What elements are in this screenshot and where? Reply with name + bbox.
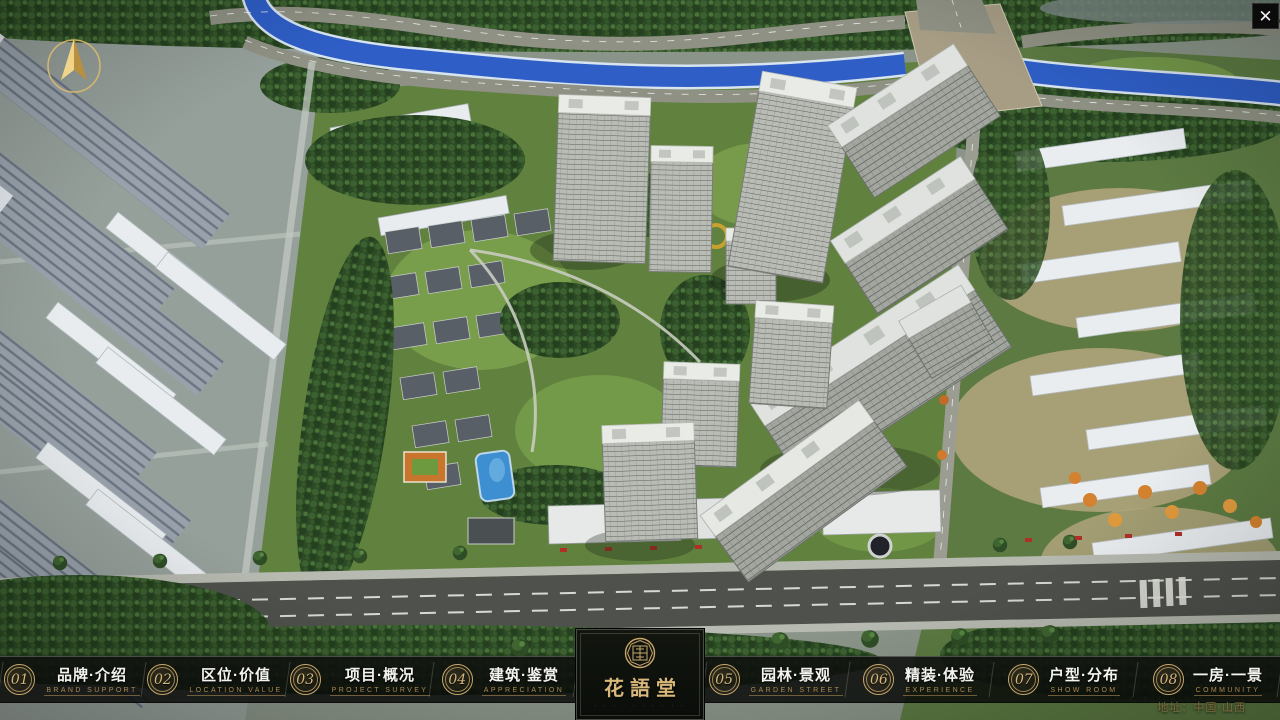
nav-number-badge: 06 <box>863 664 894 695</box>
nav-item-title: 一房·一景 <box>1193 664 1263 685</box>
nav-number-badge: 08 <box>1153 664 1184 695</box>
nav-item-title: 精装·体验 <box>905 664 975 685</box>
nav-number-badge: 05 <box>709 664 740 695</box>
nav-item-subtitle: APPRECIATION <box>482 687 566 696</box>
nav-item-subtitle: LOCATION VALUE <box>187 687 284 696</box>
nav-number-badge: 03 <box>290 664 321 695</box>
nav-item-architecture[interactable]: 04 建筑·鉴赏 APPRECIATION <box>432 657 576 702</box>
nav-item-project-survey[interactable]: 03 项目·概况 PROJECT SURVEY <box>288 657 432 702</box>
property-showcase-app: ✕ 01 品牌·介绍 BRAND SUPPORT 02 区位·价值 LOCATI… <box>0 0 1280 720</box>
brand-caption: · · · · · · · · · · <box>594 703 686 709</box>
nav-item-title: 品牌·介绍 <box>57 664 127 685</box>
close-button[interactable]: ✕ <box>1252 3 1279 29</box>
nav-item-subtitle: GARDEN STREET <box>749 687 844 696</box>
nav-item-title: 户型·分布 <box>1049 664 1119 685</box>
address-label: 地址：中国·山西 <box>1157 699 1246 715</box>
nav-item-subtitle: PROJECT SURVEY <box>330 687 431 696</box>
vignette-overlay <box>0 0 1280 720</box>
nav-item-floorplans[interactable]: 07 户型·分布 SHOW ROOM <box>992 657 1136 702</box>
nav-item-location-value[interactable]: 02 区位·价值 LOCATION VALUE <box>144 657 288 702</box>
nav-number-badge: 01 <box>4 664 35 695</box>
nav-item-subtitle: EXPERIENCE <box>903 687 976 696</box>
nav-item-title: 园林·景观 <box>761 664 831 685</box>
brand-seal-icon <box>624 637 656 669</box>
brand-logo[interactable]: 花語堂 · · · · · · · · · · <box>576 629 704 720</box>
nav-item-title: 项目·概况 <box>345 664 415 685</box>
nav-group-right: 05 园林·景观 GARDEN STREET 06 精装·体验 EXPERIEN… <box>704 657 1280 702</box>
nav-item-brand-intro[interactable]: 01 品牌·介绍 BRAND SUPPORT <box>0 657 144 702</box>
nav-item-subtitle: COMMUNITY <box>1194 687 1263 696</box>
nav-item-title: 建筑·鉴赏 <box>489 664 559 685</box>
nav-item-title: 区位·价值 <box>201 664 271 685</box>
nav-number-badge: 04 <box>442 664 473 695</box>
brand-name: 花語堂 <box>598 672 682 701</box>
nav-group-left: 01 品牌·介绍 BRAND SUPPORT 02 区位·价值 LOCATION… <box>0 657 576 702</box>
nav-item-subtitle: SHOW ROOM <box>1048 687 1119 696</box>
nav-item-subtitle: BRAND SUPPORT <box>44 687 139 696</box>
aerial-masterplan-render[interactable] <box>0 0 1280 720</box>
nav-item-room-views[interactable]: 08 一房·一景 COMMUNITY <box>1136 657 1280 702</box>
nav-item-garden-landscape[interactable]: 05 园林·景观 GARDEN STREET <box>704 657 848 702</box>
close-icon: ✕ <box>1258 8 1272 25</box>
nav-number-badge: 02 <box>147 664 178 695</box>
nav-number-badge: 07 <box>1008 664 1039 695</box>
nav-item-experience[interactable]: 06 精装·体验 EXPERIENCE <box>848 657 992 702</box>
